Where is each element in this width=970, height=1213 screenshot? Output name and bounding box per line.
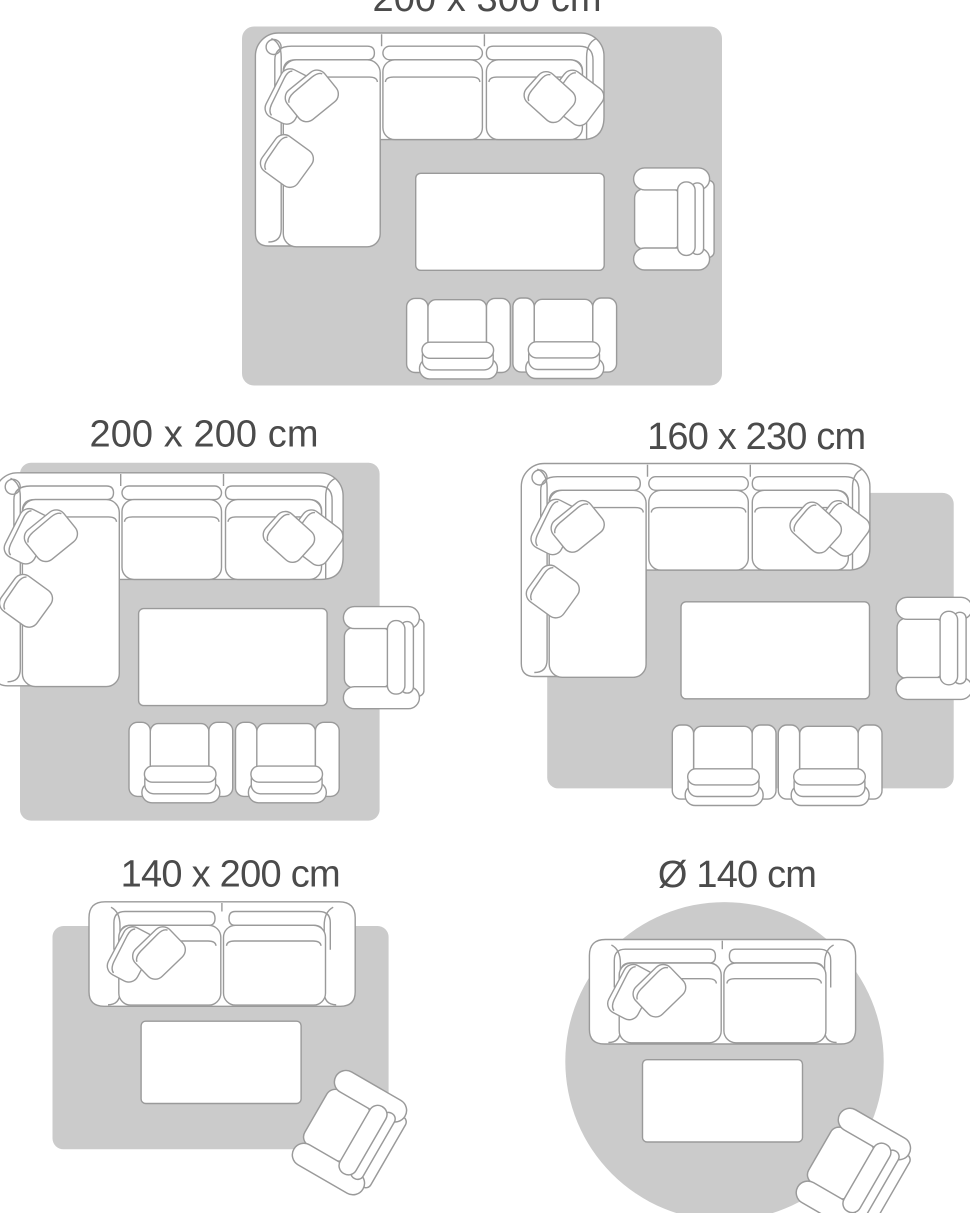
svg-text:140 x 200 cm: 140 x 200 cm: [121, 854, 341, 896]
svg-text:200 x 300 cm: 200 x 300 cm: [373, 0, 602, 20]
svg-text:160 x 230 cm: 160 x 230 cm: [647, 416, 866, 458]
svg-text:Ø 140 cm: Ø 140 cm: [658, 854, 817, 896]
svg-text:200 x 200 cm: 200 x 200 cm: [90, 414, 319, 456]
